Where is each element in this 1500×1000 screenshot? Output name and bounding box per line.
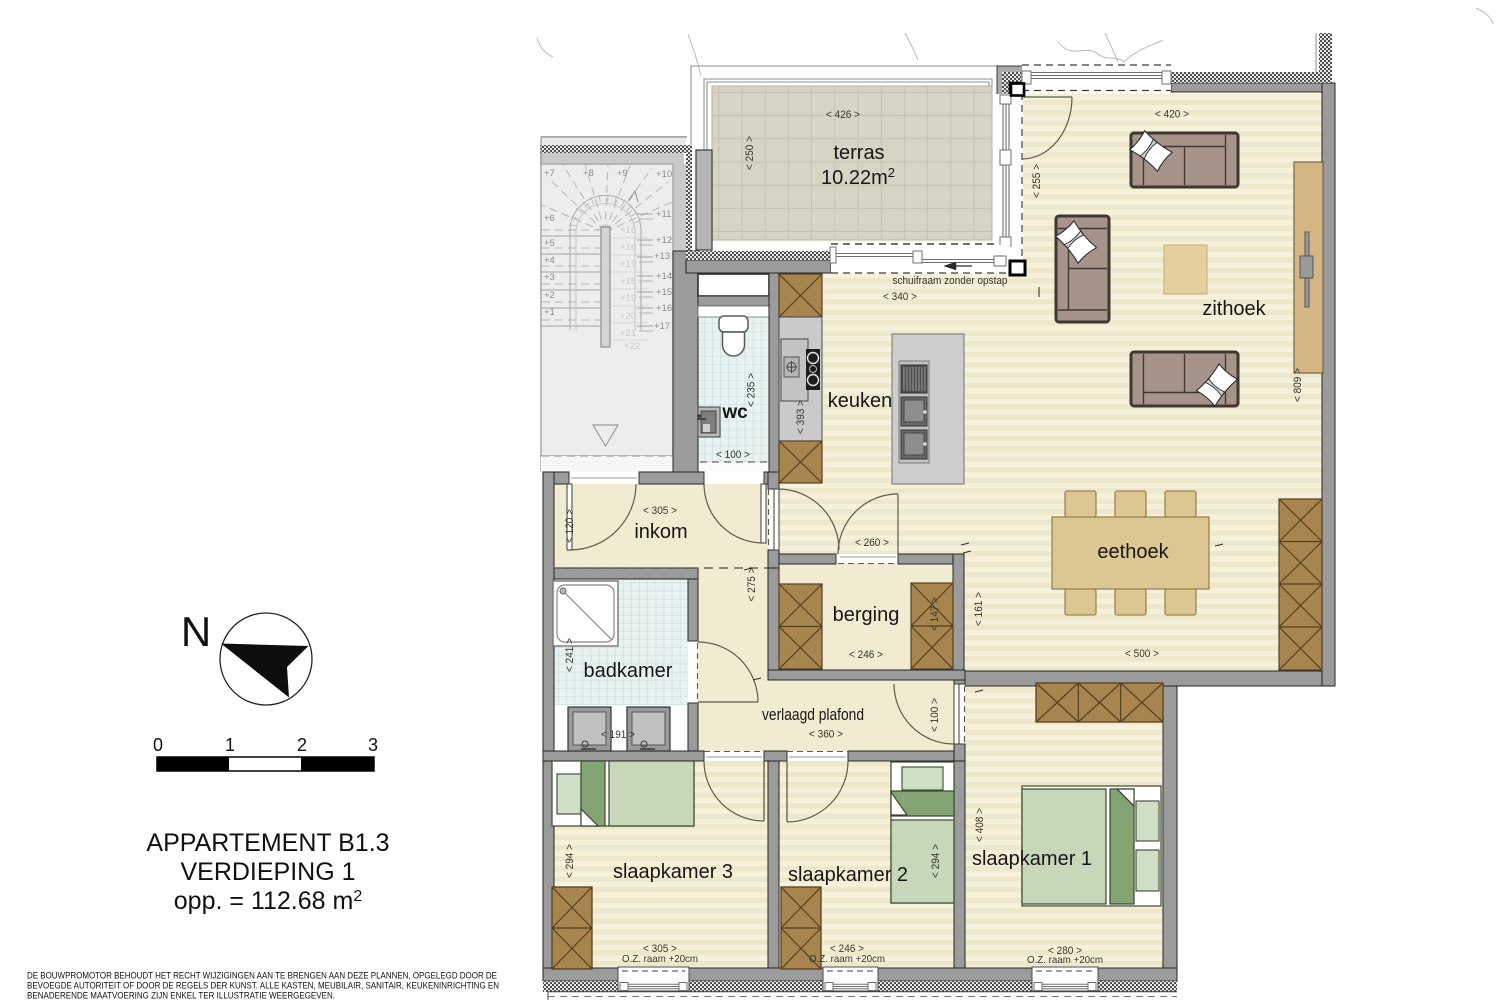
svg-text:< 420 >: < 420 > [1155,109,1189,121]
svg-text:< 191 >: < 191 > [601,729,635,741]
svg-text:+13: +13 [654,251,670,262]
svg-text:schuifraam zonder opstap: schuifraam zonder opstap [893,275,1008,287]
svg-text:2: 2 [297,735,307,755]
svg-text:< 294 >: < 294 > [564,844,576,878]
svg-text:< 340 >: < 340 > [883,291,917,303]
svg-text:1: 1 [225,735,235,755]
svg-text:+12: +12 [656,235,672,246]
svg-text:< 393 >: < 393 > [795,400,807,434]
svg-text:< 161 >: < 161 > [973,592,985,626]
svg-text:< 241 >: < 241 > [564,638,576,672]
svg-text:badkamer: badkamer [584,660,673,682]
svg-text:APPARTEMENT B1.3: APPARTEMENT B1.3 [146,829,389,857]
svg-text:< 305 >: < 305 > [643,505,677,517]
svg-text:O.Z. raam +20cm: O.Z. raam +20cm [622,953,698,965]
svg-text:N: N [181,608,211,655]
svg-text:keuken: keuken [828,390,893,412]
svg-text:+5: +5 [544,238,555,249]
svg-text:BEVOEGDE AUTORITEIT OF DOOR DE: BEVOEGDE AUTORITEIT OF DOOR DE REGELS DE… [27,981,499,991]
svg-text:< 246 >: < 246 > [849,649,883,661]
svg-text:+21: +21 [620,328,636,339]
svg-text:slaapkamer 2: slaapkamer 2 [788,864,908,886]
svg-text:+9: +9 [617,168,628,179]
svg-text:< 275 >: < 275 > [746,568,758,602]
svg-text:< 360 >: < 360 > [809,729,843,741]
svg-text:< 809 >: < 809 > [1292,368,1304,402]
svg-text:< 426 >: < 426 > [826,109,860,121]
svg-text:+17: +17 [654,321,670,332]
svg-text:+19: +19 [620,293,636,304]
svg-text:+20: +20 [620,311,636,322]
svg-text:verlaagd plafond: verlaagd plafond [762,706,864,724]
svg-text:+15: +15 [656,287,672,298]
svg-text:+18: +18 [620,276,636,287]
svg-text:< 147 >: < 147 > [929,597,941,631]
svg-text:+11: +11 [656,209,671,220]
svg-text:+4: +4 [544,255,555,266]
svg-text:< 100 >: < 100 > [929,698,941,732]
svg-text:< 255 >: < 255 > [1031,164,1043,198]
svg-text:+17: +17 [620,259,636,270]
svg-text:O.Z. raam +20cm: O.Z. raam +20cm [809,953,885,965]
svg-text:opp. = 112.68 m2: opp. = 112.68 m2 [174,887,363,915]
svg-text:slaapkamer 3: slaapkamer 3 [613,861,733,883]
svg-text:3: 3 [368,735,378,755]
svg-text:+1: +1 [544,307,555,318]
svg-text:+14: +14 [656,271,672,282]
svg-text:O.Z. raam +20cm: O.Z. raam +20cm [1027,954,1103,966]
svg-text:eethoek: eethoek [1097,541,1169,563]
svg-text:+16: +16 [620,242,636,253]
svg-text:+6: +6 [544,213,555,224]
svg-text:< 235 >: < 235 > [746,373,758,407]
svg-text:< 250 >: < 250 > [744,136,756,170]
svg-text:< 294 >: < 294 > [930,844,942,878]
svg-text:slaapkamer 1: slaapkamer 1 [972,848,1092,870]
svg-text:< 408 >: < 408 > [974,808,986,842]
svg-text:terras: terras [833,142,884,164]
svg-text:+22: +22 [624,341,640,352]
svg-text:DE BOUWPROMOTOR BEHOUDT HET RE: DE BOUWPROMOTOR BEHOUDT HET RECHT WIJZIG… [27,971,497,981]
svg-text:+15: +15 [620,225,636,236]
svg-text:+2: +2 [544,290,555,301]
svg-text:+7: +7 [544,168,555,179]
svg-text:+16: +16 [656,303,672,314]
svg-text:berging: berging [833,604,900,626]
svg-text:< 500 >: < 500 > [1125,648,1159,660]
svg-text:zithoek: zithoek [1202,298,1266,320]
svg-text:< 260 >: < 260 > [855,537,889,549]
svg-text:0: 0 [153,735,163,755]
svg-text:wc: wc [721,402,748,423]
svg-text:< 100 >: < 100 > [716,449,750,461]
svg-text:+3: +3 [544,272,555,283]
svg-text:< 120 >: < 120 > [564,509,576,543]
svg-text:+10: +10 [656,169,672,180]
svg-text:BENADERENDE MAATVOERING ZIJN E: BENADERENDE MAATVOERING ZIJN ENKEL TER I… [27,991,335,1000]
svg-text:10.22m2: 10.22m2 [821,165,895,189]
svg-text:inkom: inkom [634,521,687,543]
svg-text:+8: +8 [583,168,594,179]
svg-text:VERDIEPING 1: VERDIEPING 1 [180,858,355,886]
